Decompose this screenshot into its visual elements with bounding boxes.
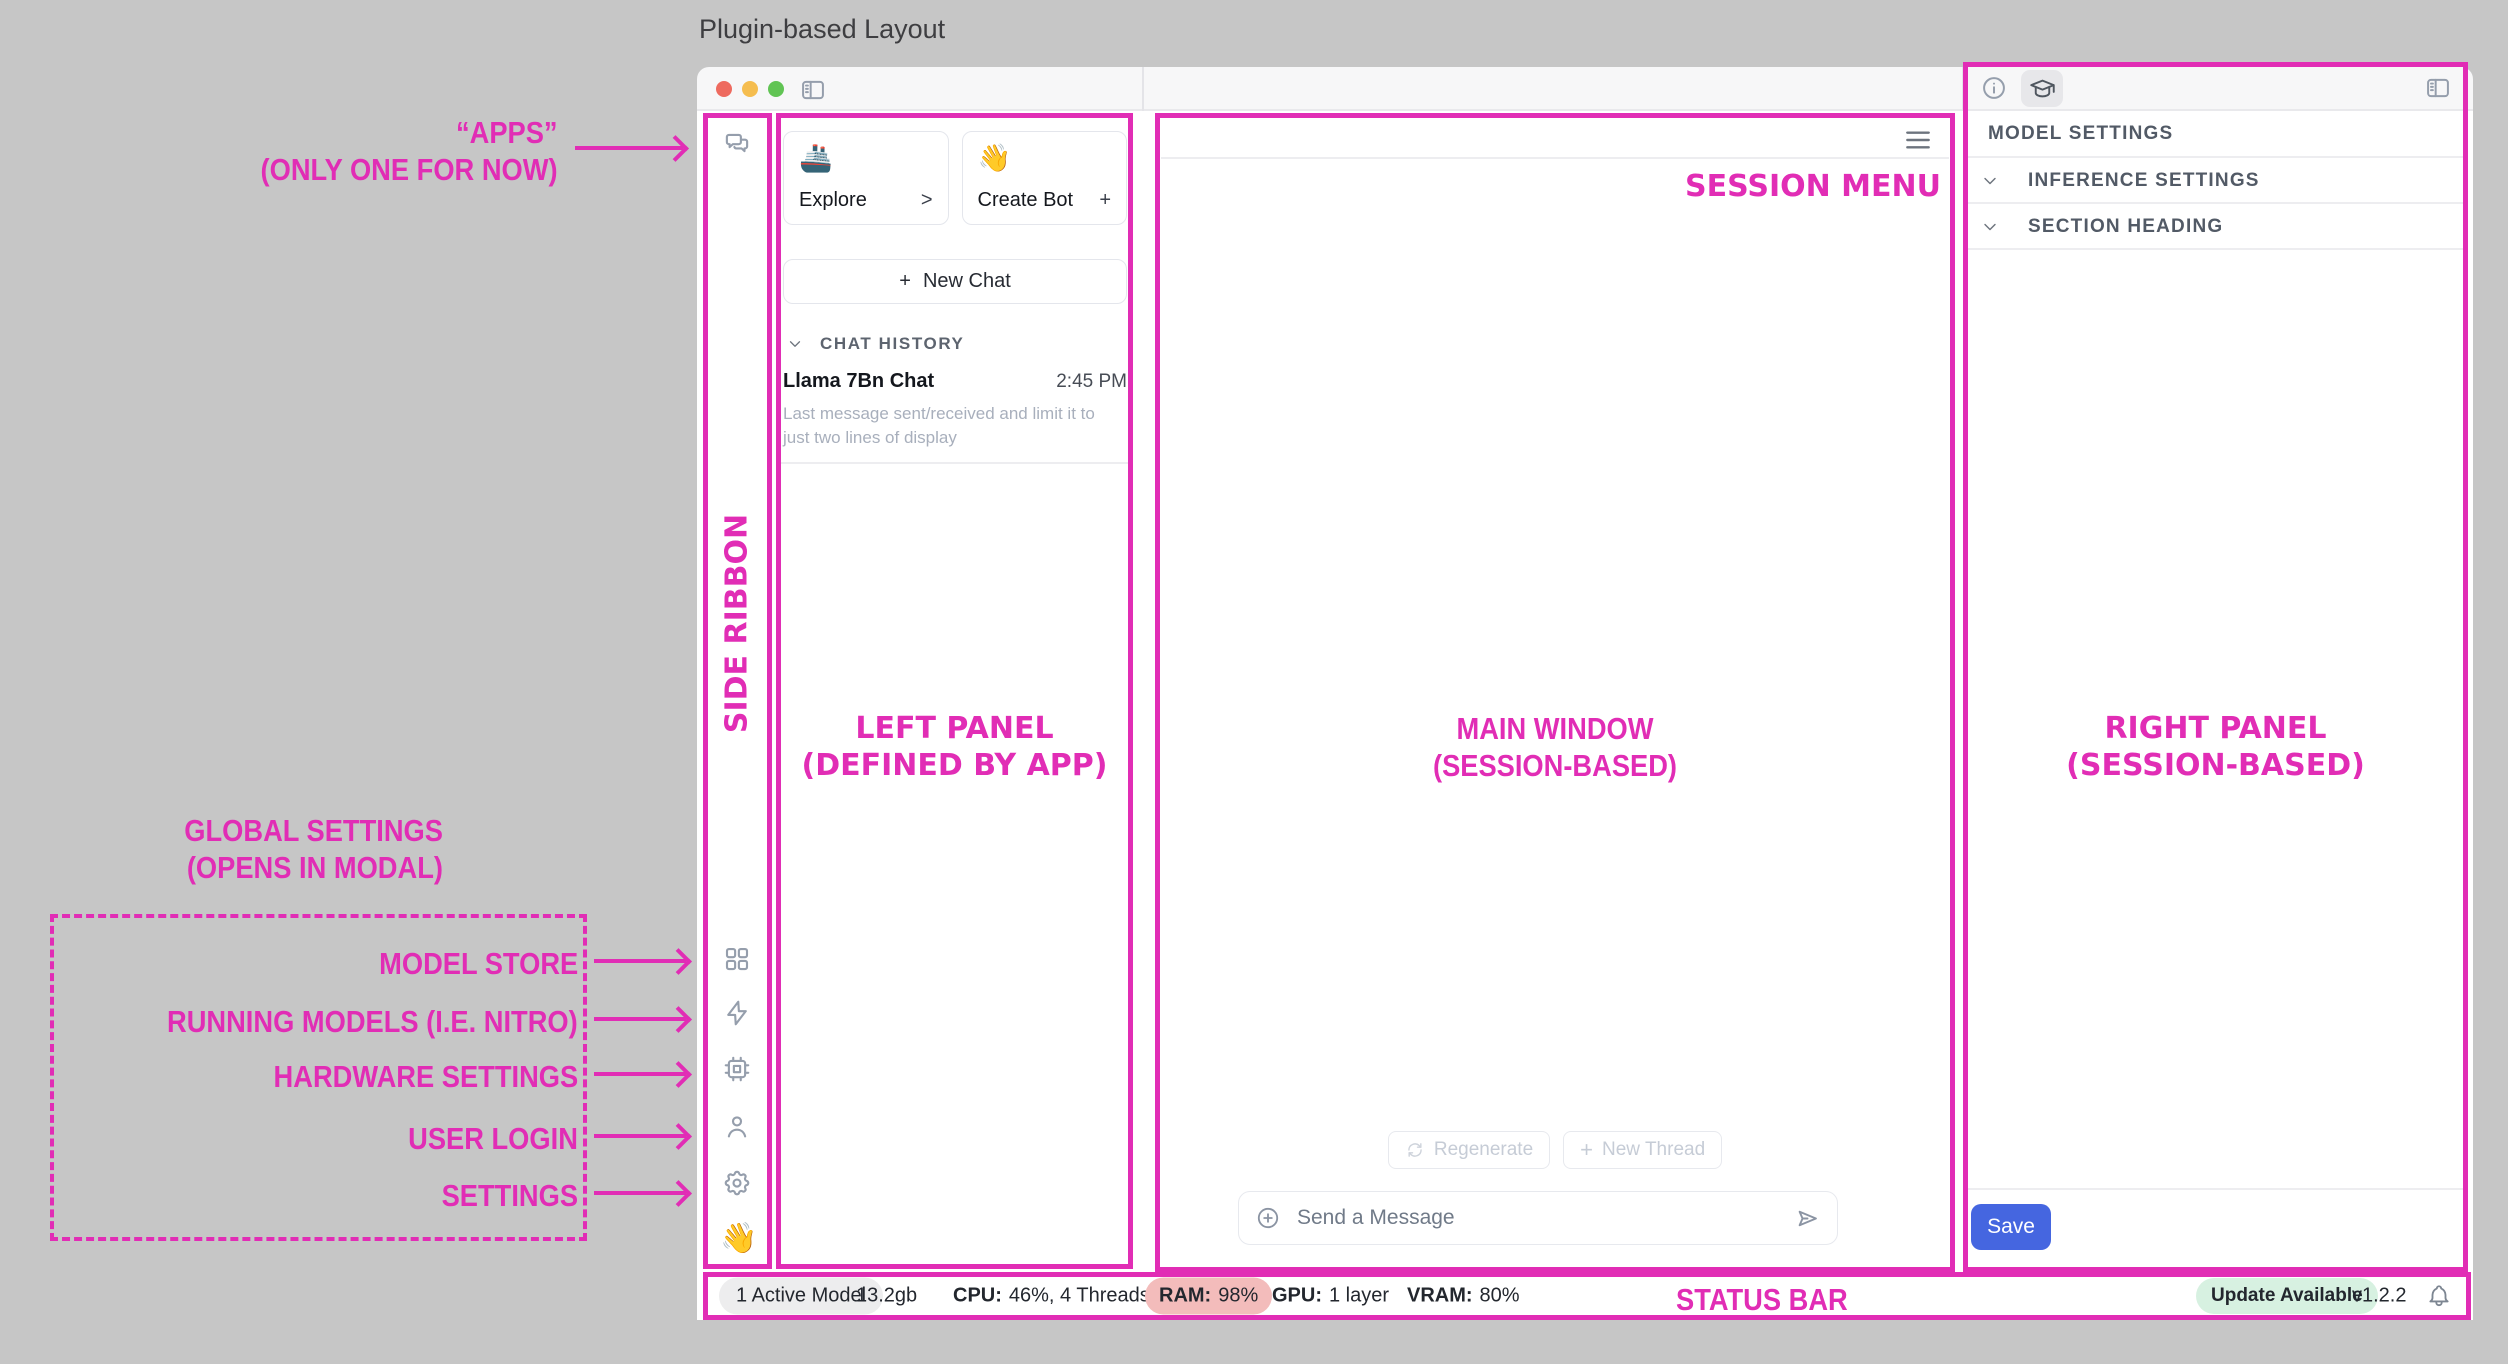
left-panel-outline — [776, 113, 1133, 1269]
annotation-settings: SETTINGS — [442, 1177, 578, 1214]
right-panel-outline — [1963, 62, 2468, 1272]
annotation-arrow — [594, 1017, 686, 1021]
toolbar-divider — [1142, 67, 1144, 111]
annotation-main-window: MAIN WINDOW (SESSION-BASED) — [1203, 710, 1907, 784]
main-window-outline — [1155, 113, 1955, 1272]
annotation-apps: “APPS” (ONLY ONE FOR NOW) — [261, 114, 558, 188]
annotation-arrow — [594, 959, 686, 963]
minimize-window-button[interactable] — [742, 81, 758, 97]
annotation-session-menu: SESSION MENU — [1685, 168, 1941, 205]
annotation-user-login: USER LOGIN — [408, 1120, 578, 1157]
annotation-arrow — [594, 1191, 686, 1195]
zoom-window-button[interactable] — [768, 81, 784, 97]
traffic-lights — [716, 81, 784, 97]
annotation-arrow — [594, 1134, 686, 1138]
annotation-running-models: RUNNING MODELS (I.E. NITRO) — [167, 1003, 578, 1040]
annotation-right-panel: RIGHT PANEL (SESSION-BASED) — [1963, 710, 2468, 784]
annotation-hardware-settings: HARDWARE SETTINGS — [273, 1058, 578, 1095]
annotation-model-store: MODEL STORE — [379, 945, 578, 982]
close-window-button[interactable] — [716, 81, 732, 97]
status-bar-outline — [703, 1272, 2471, 1320]
page-title: Plugin-based Layout — [699, 14, 945, 45]
annotation-status-bar: STATUS BAR — [1676, 1281, 1848, 1318]
toggle-left-sidebar-icon[interactable] — [799, 76, 827, 104]
design-canvas: Plugin-based Layout 👋 — [0, 0, 2508, 1364]
annotation-arrow — [575, 146, 683, 150]
annotation-left-panel: LEFT PANEL (DEFINED BY APP) — [776, 710, 1133, 784]
annotation-global-settings: GLOBAL SETTINGS (OPENS IN MODAL) — [184, 812, 443, 886]
annotation-side-ribbon: SIDE RIBBON — [719, 474, 756, 774]
annotation-arrow — [594, 1072, 686, 1076]
